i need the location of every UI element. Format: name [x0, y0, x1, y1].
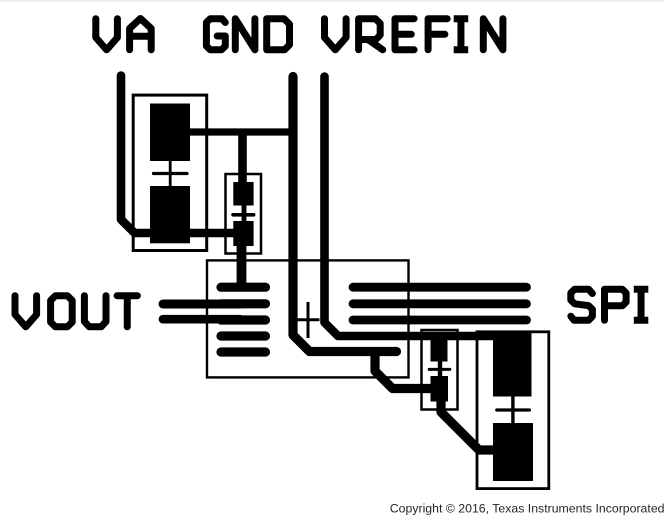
svg-text:Copyright © 2016, Texas Instru: Copyright © 2016, Texas Instruments Inco…	[390, 502, 664, 516]
